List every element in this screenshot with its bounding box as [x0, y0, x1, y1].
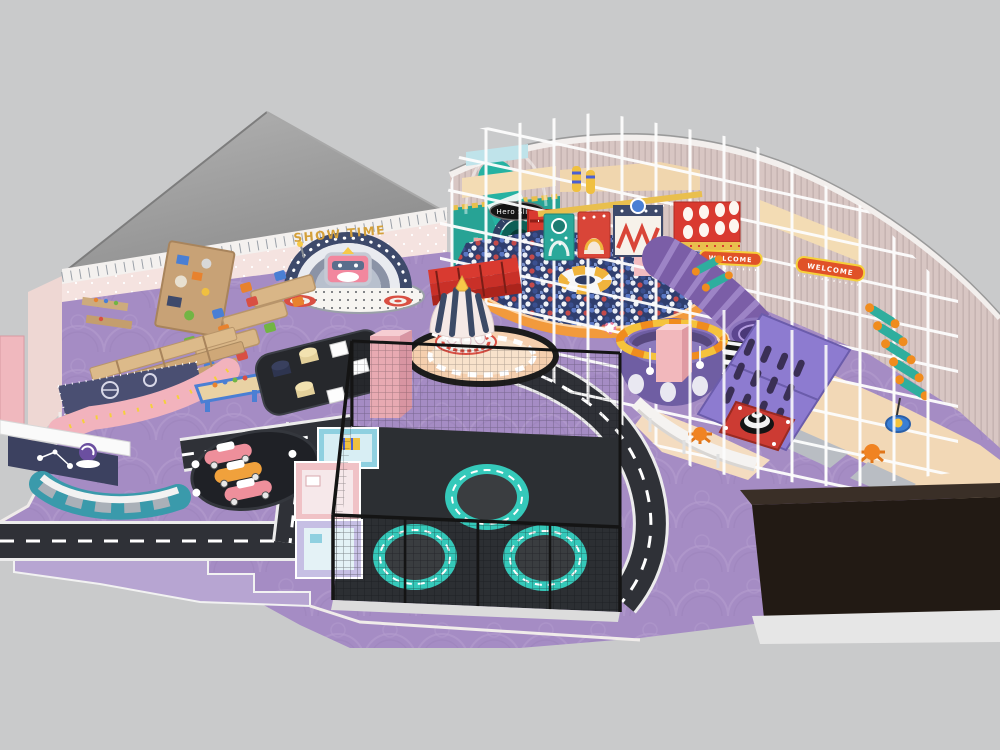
- red-awning-panel: [674, 201, 740, 250]
- fence-front: [333, 515, 620, 612]
- spinner-ring: [620, 318, 724, 406]
- fence-back: [352, 341, 620, 438]
- playground-render: SHOW TIME: [0, 0, 1000, 750]
- stage-platform: [740, 483, 1000, 644]
- rainbow-panel: [578, 212, 610, 258]
- playhouse-room-pink: [295, 462, 360, 520]
- pinball-panel: [544, 214, 574, 260]
- pink-post: [656, 324, 692, 382]
- stage-sign: [326, 247, 370, 284]
- pink-pillar-left: [0, 336, 24, 428]
